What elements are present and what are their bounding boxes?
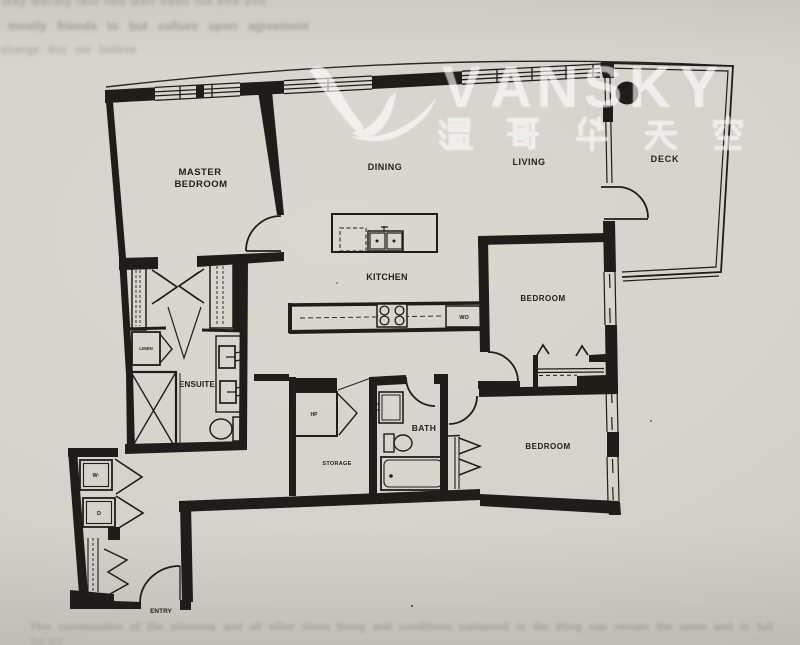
svg-text:Y: Y [680, 55, 719, 120]
svg-text:V: V [442, 55, 481, 120]
svg-text:A: A [490, 55, 532, 120]
svg-text:S: S [584, 55, 623, 120]
svg-text:N: N [537, 55, 579, 120]
svg-text:K: K [629, 55, 671, 120]
